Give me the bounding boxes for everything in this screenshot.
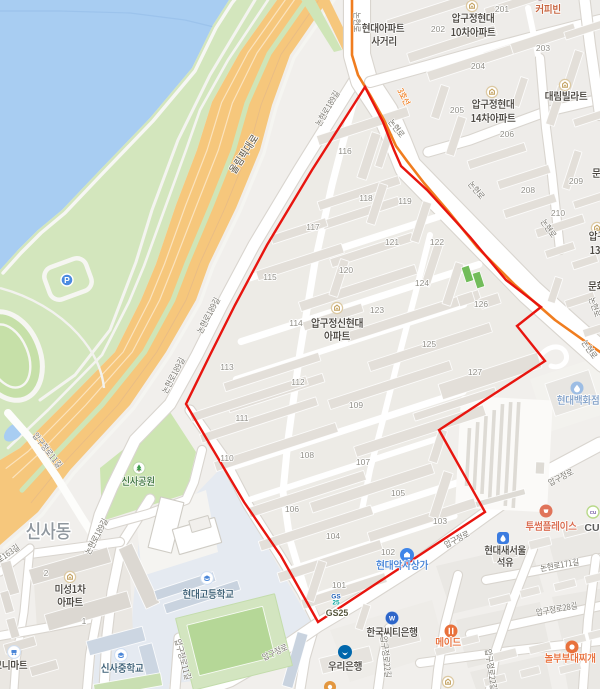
- svg-text:124: 124: [415, 278, 429, 288]
- svg-text:119: 119: [398, 196, 412, 206]
- svg-text:202: 202: [431, 24, 445, 34]
- svg-text:GS25: GS25: [326, 608, 349, 618]
- svg-text:123: 123: [370, 305, 384, 315]
- svg-text:115: 115: [263, 272, 277, 282]
- svg-text:204: 204: [471, 61, 485, 71]
- svg-text:114: 114: [289, 318, 303, 328]
- svg-text:104: 104: [326, 531, 340, 541]
- svg-text:201: 201: [495, 4, 509, 14]
- svg-text:103: 103: [433, 516, 447, 526]
- svg-text:118: 118: [359, 193, 373, 203]
- svg-text:121: 121: [385, 237, 399, 247]
- svg-text:126: 126: [474, 299, 488, 309]
- svg-text:125: 125: [422, 339, 436, 349]
- svg-text:108: 108: [300, 450, 314, 460]
- svg-text:117: 117: [306, 222, 320, 232]
- svg-text:109: 109: [349, 400, 363, 410]
- svg-text:112: 112: [291, 377, 305, 387]
- svg-text:203: 203: [536, 43, 550, 53]
- svg-text:102: 102: [381, 547, 395, 557]
- svg-text:CU: CU: [584, 522, 599, 534]
- svg-text:127: 127: [468, 367, 482, 377]
- svg-text:111: 111: [236, 413, 249, 423]
- svg-text:205: 205: [450, 105, 464, 115]
- svg-text:210: 210: [551, 208, 565, 218]
- svg-text:CU: CU: [590, 510, 597, 515]
- svg-text:107: 107: [356, 457, 370, 467]
- svg-text:209: 209: [569, 176, 583, 186]
- svg-text:25: 25: [332, 600, 340, 607]
- svg-text:110: 110: [220, 453, 234, 463]
- svg-text:208: 208: [521, 185, 535, 195]
- svg-text:105: 105: [391, 488, 405, 498]
- svg-text:2: 2: [44, 568, 49, 578]
- svg-text:122: 122: [430, 237, 444, 247]
- svg-text:116: 116: [338, 146, 352, 156]
- svg-text:113: 113: [220, 362, 234, 372]
- svg-text:1: 1: [82, 616, 87, 626]
- svg-text:120: 120: [339, 265, 353, 275]
- svg-text:206: 206: [500, 129, 514, 139]
- svg-text:106: 106: [285, 504, 299, 514]
- svg-text:P: P: [64, 275, 70, 285]
- svg-text:W: W: [389, 615, 396, 622]
- svg-text:101: 101: [332, 580, 346, 590]
